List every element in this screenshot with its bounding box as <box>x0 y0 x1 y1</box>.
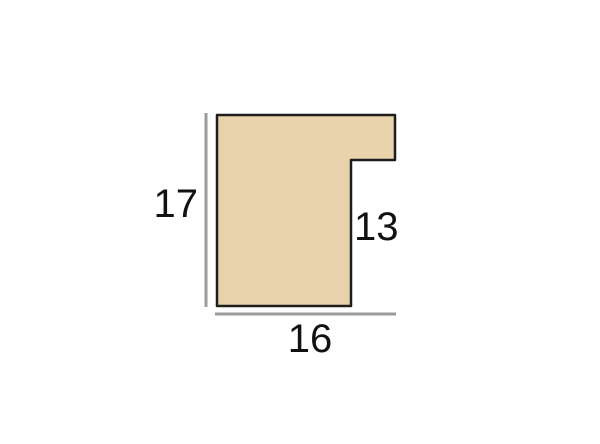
diagram-canvas: 17 13 16 <box>0 0 600 444</box>
rebate-dimension-label: 13 <box>354 205 399 249</box>
height-dimension-label: 17 <box>154 182 199 226</box>
width-dimension-label: 16 <box>288 317 333 361</box>
frame-moulding-profile-diagram: 17 13 16 <box>0 0 600 444</box>
